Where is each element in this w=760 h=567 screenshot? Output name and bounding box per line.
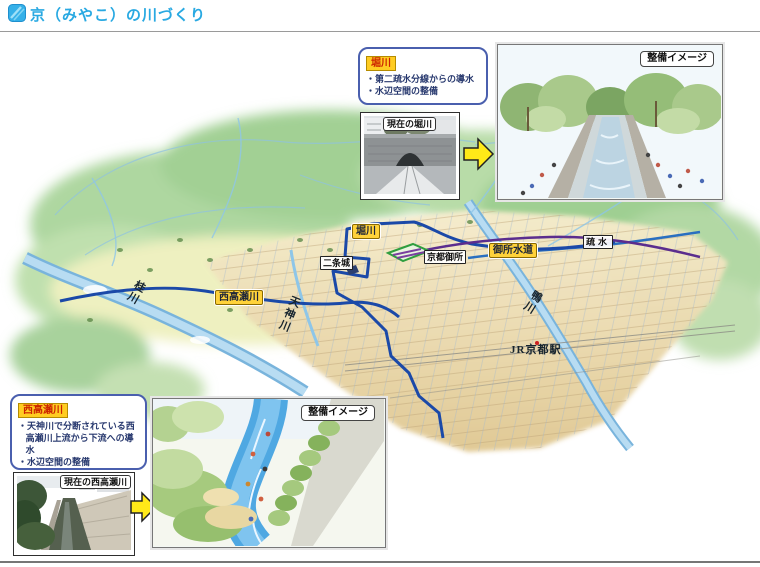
page-title: 京（みやこ）の川づくり (30, 4, 206, 25)
page-header: 京（みやこ）の川づくり (0, 0, 760, 30)
brush-square-icon (8, 4, 26, 22)
nishitakase-image-panel: 整備イメージ (152, 398, 386, 548)
nishitakase-current-photo: 現在の西高瀬川 (13, 472, 135, 556)
horikawa-info-box: 堀川 ・第二疏水分線からの導水 ・水辺空間の整備 (358, 47, 488, 105)
map-label-horikawa: 堀川 (352, 224, 380, 239)
map-label-gosho-suido: 御所水道 (489, 243, 537, 258)
horikawa-bullet-1: ・第二疏水分線からの導水 (366, 73, 480, 85)
map-label-sosui: 疏水 (583, 235, 613, 249)
nishitakase-image-art (153, 399, 384, 546)
nishitakase-image-label: 整備イメージ (301, 405, 375, 421)
page: 京（みやこ）の川づくり (0, 0, 760, 567)
horikawa-current-photo: 現在の堀川 (360, 112, 460, 200)
horikawa-image-label: 整備イメージ (640, 51, 714, 67)
map-label-jr-kyoto-station: JR京都駅 (510, 341, 561, 357)
horikawa-photo-label: 現在の堀川 (383, 117, 436, 131)
horikawa-info-title: 堀川 (366, 56, 396, 71)
nishitakase-photo-label: 現在の西高瀬川 (60, 475, 131, 489)
horikawa-image-art (498, 45, 721, 198)
bottom-divider (0, 561, 760, 563)
nishitakase-info-box: 西高瀬川 ・天神川で分断されている西高瀬川上流から下流への導水 ・水辺空間の整備 (10, 394, 147, 470)
nishitakase-bullet-2: ・水辺空間の整備 (18, 456, 139, 468)
nishitakase-bullet-1: ・天神川で分断されている西高瀬川上流から下流への導水 (18, 420, 139, 456)
map-label-kyoto-gosho: 京都御所 (424, 250, 466, 264)
nishitakase-info-title: 西高瀬川 (18, 403, 68, 418)
horikawa-bullet-2: ・水辺空間の整備 (366, 85, 480, 97)
map-label-nishitakase: 西高瀬川 (215, 290, 263, 305)
horikawa-arrow-icon (462, 136, 496, 172)
map-label-nijo-castle: 二条城 (320, 256, 353, 270)
horikawa-image-panel: 整備イメージ (497, 44, 723, 200)
